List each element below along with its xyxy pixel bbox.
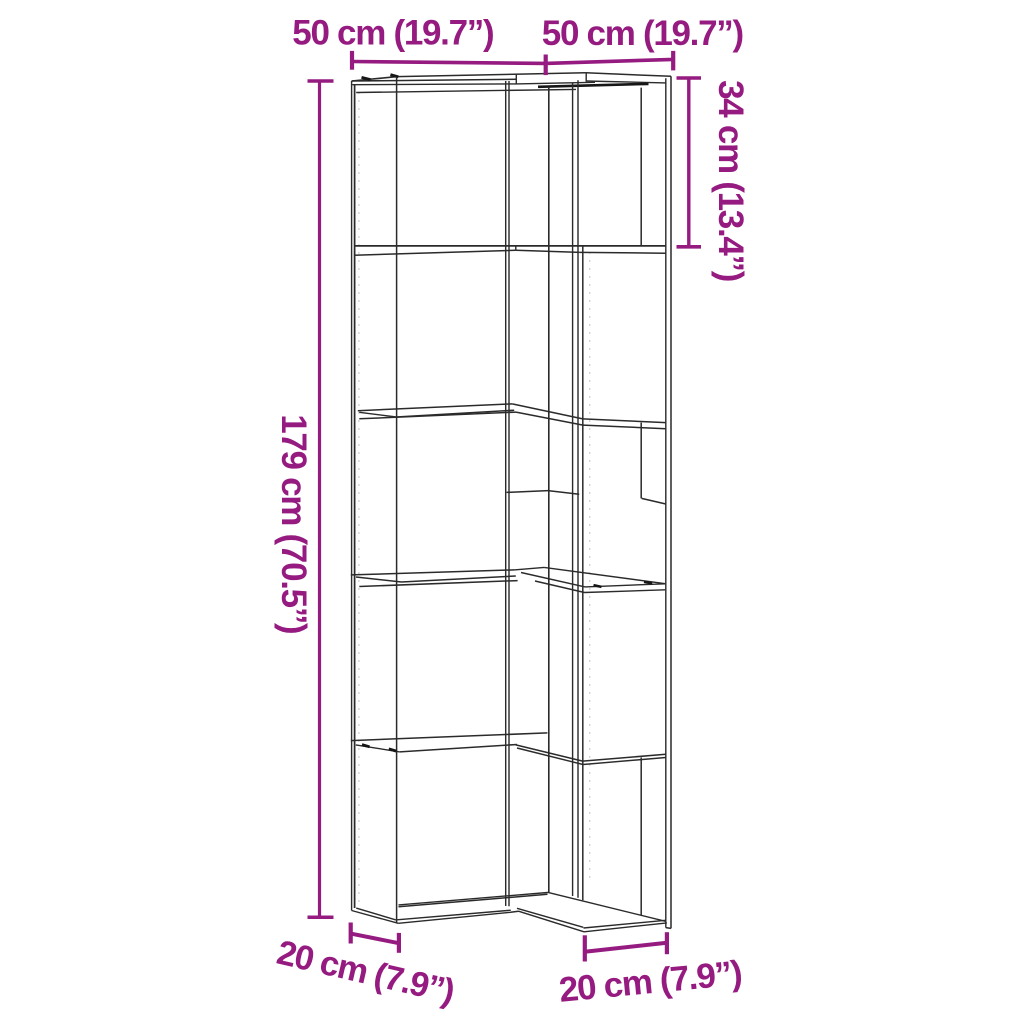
svg-text:34 cm (13.4”): 34 cm (13.4”) [711,80,750,281]
svg-text:179 cm (70.5”): 179 cm (70.5”) [274,414,313,633]
svg-text:50 cm (19.7”): 50 cm (19.7”) [292,14,493,53]
svg-text:50 cm (19.7”): 50 cm (19.7”) [542,14,743,53]
